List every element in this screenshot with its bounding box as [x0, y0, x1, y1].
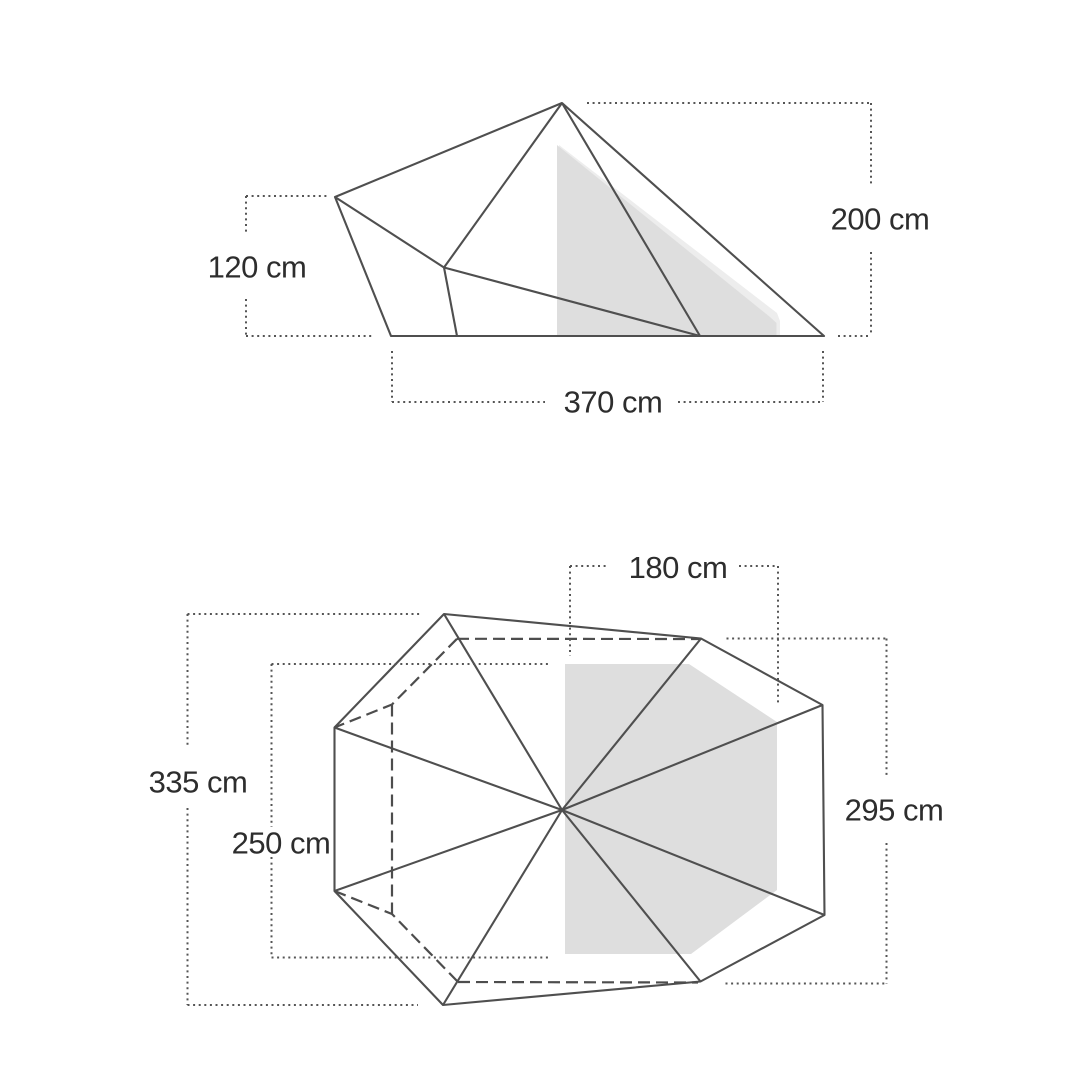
svg-text:180 cm: 180 cm — [629, 550, 728, 585]
svg-text:120 cm: 120 cm — [208, 250, 307, 285]
svg-text:250 cm: 250 cm — [232, 826, 331, 861]
svg-text:295 cm: 295 cm — [845, 793, 944, 828]
svg-text:370 cm: 370 cm — [564, 385, 663, 420]
svg-text:335 cm: 335 cm — [149, 765, 248, 800]
svg-text:200 cm: 200 cm — [831, 202, 930, 237]
